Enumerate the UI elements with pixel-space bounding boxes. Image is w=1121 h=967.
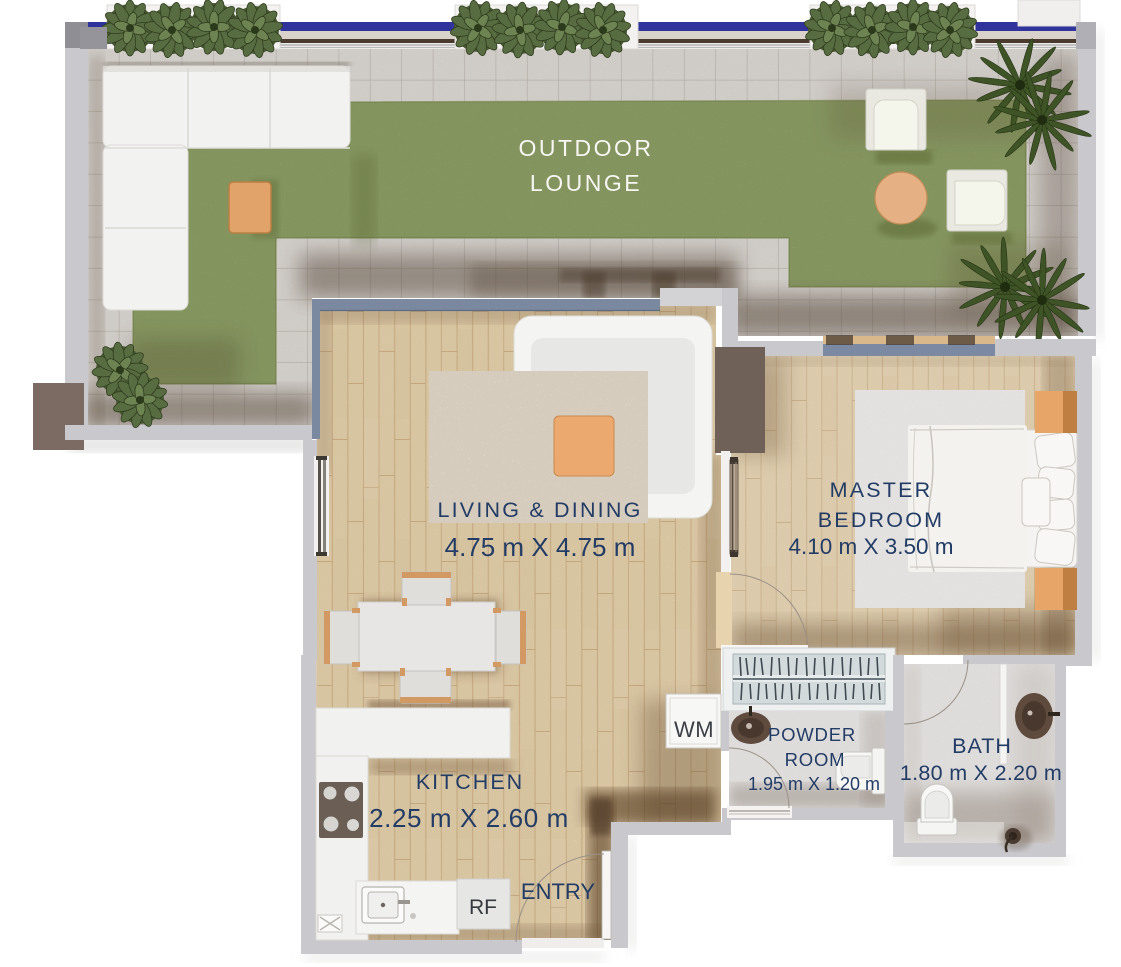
svg-text:POWDER: POWDER [768,724,856,745]
svg-text:KITCHEN: KITCHEN [416,770,524,794]
svg-text:ENTRY: ENTRY [521,879,595,904]
svg-text:RF: RF [469,896,497,919]
svg-text:4.10 m X 3.50 m: 4.10 m X 3.50 m [788,534,953,559]
svg-text:OUTDOOR: OUTDOOR [518,135,653,161]
svg-text:1.95 m X 1.20 m: 1.95 m X 1.20 m [748,774,880,794]
svg-text:2.25 m X 2.60 m: 2.25 m X 2.60 m [369,803,569,833]
svg-text:LOUNGE: LOUNGE [530,170,642,196]
svg-text:LIVING & DINING: LIVING & DINING [437,498,642,522]
svg-text:ROOM: ROOM [785,749,846,770]
svg-text:MASTER: MASTER [830,478,933,502]
svg-text:BATH: BATH [952,734,1012,758]
svg-text:4.75 m X 4.75 m: 4.75 m X 4.75 m [445,532,636,562]
svg-text:BEDROOM: BEDROOM [818,508,945,532]
svg-text:1.80 m X 2.20 m: 1.80 m X 2.20 m [900,761,1062,785]
svg-text:WM: WM [674,717,714,742]
